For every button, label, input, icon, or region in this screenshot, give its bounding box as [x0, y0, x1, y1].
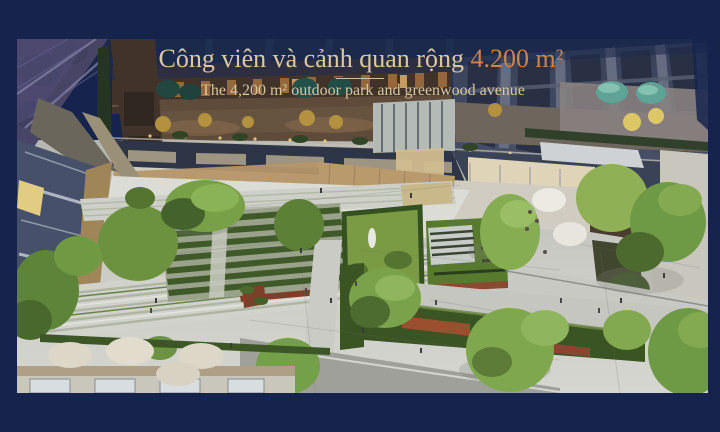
svg-text:The 4,200 m² outdoor park and: The 4,200 m² outdoor park and greenwood … — [201, 82, 525, 99]
svg-text:Công viên và cảnh quan rộng 4.: Công viên và cảnh quan rộng 4.200 m² — [159, 44, 564, 73]
